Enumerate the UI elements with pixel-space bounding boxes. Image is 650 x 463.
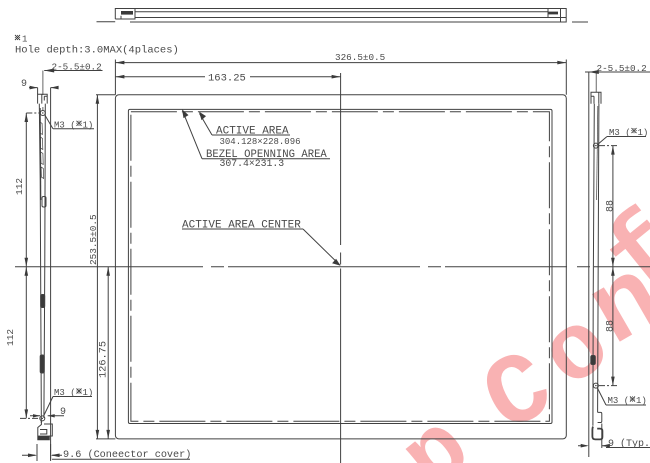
svg-text:p: p — [383, 396, 492, 463]
svg-text:1): 1) — [83, 388, 94, 398]
svg-text:126.75: 126.75 — [98, 341, 110, 378]
svg-text:253.5±0.5: 253.5±0.5 — [88, 214, 99, 265]
svg-text:M3 (: M3 ( — [54, 121, 76, 131]
svg-text:M3 (: M3 ( — [608, 396, 630, 406]
svg-text:9.6 (Coneector cover): 9.6 (Coneector cover) — [63, 449, 191, 461]
svg-text:2-5.5±0.2: 2-5.5±0.2 — [52, 62, 102, 73]
svg-text:9: 9 — [21, 79, 27, 90]
svg-text:Hole depth:3.0MAX(4places): Hole depth:3.0MAX(4places) — [15, 45, 179, 57]
svg-text:9: 9 — [60, 407, 66, 418]
svg-text:1: 1 — [22, 35, 27, 45]
svg-text:M3 (: M3 ( — [609, 128, 631, 138]
svg-text:ACTIVE AREA: ACTIVE AREA — [216, 126, 289, 138]
svg-text:ACTIVE AREA CENTER: ACTIVE AREA CENTER — [182, 220, 301, 232]
svg-text:304.128×228.096: 304.128×228.096 — [220, 137, 301, 147]
svg-text:163.25: 163.25 — [208, 72, 246, 84]
svg-text:1): 1) — [83, 121, 94, 131]
svg-text:1): 1) — [638, 128, 649, 138]
svg-text:88: 88 — [606, 200, 617, 212]
svg-text:1): 1) — [636, 396, 647, 406]
svg-text:112: 112 — [14, 178, 25, 195]
svg-text:326.5±0.5: 326.5±0.5 — [335, 52, 385, 63]
svg-text:88: 88 — [606, 320, 617, 332]
svg-text:307.4×231.3: 307.4×231.3 — [220, 158, 285, 169]
svg-text:2-5.5±0.2: 2-5.5±0.2 — [597, 63, 647, 74]
svg-text:112: 112 — [5, 329, 16, 346]
svg-text:M3 (: M3 ( — [54, 388, 76, 398]
svg-text:9 (Typ.): 9 (Typ.) — [608, 438, 650, 450]
